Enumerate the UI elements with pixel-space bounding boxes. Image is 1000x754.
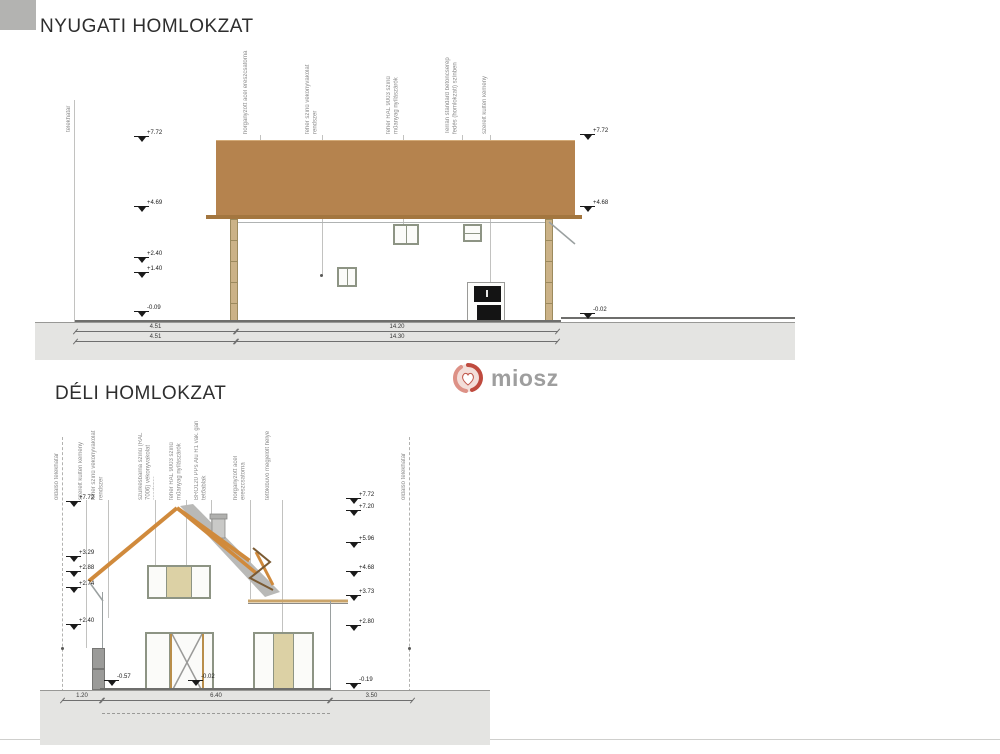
west-label-plaster: fehér színű vékonyvakolat rendszer <box>305 50 321 134</box>
window-pane <box>339 269 348 285</box>
south-label-prop-right: oldalsó telekhatár <box>401 437 409 500</box>
window-pane <box>192 567 209 597</box>
corner-ui-block <box>0 0 36 30</box>
south-ground-line <box>100 688 331 690</box>
west-property-line <box>74 100 75 322</box>
west-downpipe-diagonal <box>545 220 580 248</box>
elevation-drawing-sheet: NYUGATI HOMLOKZAT telekhatár horganyzott… <box>0 0 1000 754</box>
west-label-windows: fehér RAL 9003 színű műanyag nyílászárók <box>386 50 402 134</box>
elevation-marker: -0.02 <box>192 681 202 687</box>
south-label-prop-left: oldalsó telekhatár <box>54 437 62 500</box>
property-dot <box>408 647 411 650</box>
window-pane <box>149 567 167 597</box>
window-panel <box>167 567 192 597</box>
west-roof <box>216 140 575 218</box>
elevation-marker: +3.73 <box>350 596 360 602</box>
logo-text: miosz <box>491 365 559 392</box>
dimension-segment: 14.30 <box>236 341 558 342</box>
west-ground-line <box>75 320 561 322</box>
west-window-small-right <box>463 224 482 242</box>
elevation-marker: +3.29 <box>70 557 80 563</box>
window-pane <box>465 226 480 234</box>
dimension-segment: 6.40 <box>102 700 330 701</box>
door-side-pane <box>147 634 170 691</box>
chimney-opening-mark <box>486 290 488 297</box>
south-dashed-extent <box>102 713 330 714</box>
elevation-marker: -0.19 <box>350 684 360 690</box>
elevation-marker: +2.88 <box>70 572 80 578</box>
south-door-unit <box>145 632 214 693</box>
leader-dot <box>320 274 323 277</box>
window-pane <box>294 634 312 690</box>
window-pane <box>407 226 418 243</box>
elevation-marker: +7.72 <box>584 135 594 141</box>
dimension-segment: 3.50 <box>330 700 413 701</box>
elevation-marker: +2.74 <box>70 588 80 594</box>
south-label-chimney: szerelt kültéri kémény <box>78 420 86 500</box>
elevation-marker: +2.40 <box>70 625 80 631</box>
south-label-plaster-w: fehér színű vékonyvakolat rendszer <box>91 420 107 500</box>
miosz-logo-icon <box>452 362 484 394</box>
logo: miosz <box>452 362 559 394</box>
elevation-marker: +1.40 <box>138 273 148 279</box>
dimension-segment: 14.20 <box>236 331 558 332</box>
west-label-telekhatar: telekhatár <box>66 92 74 132</box>
elevation-marker: +7.20 <box>350 511 360 517</box>
south-wall-right <box>330 601 331 690</box>
south-property-line-right <box>409 437 410 702</box>
elevation-marker: -0.02 <box>584 314 594 320</box>
west-label-gutter: horganyzott acél ereszcsatorna <box>243 50 259 134</box>
elevation-marker: +7.72 <box>70 502 80 508</box>
south-label-gutter: horganyzott acél ereszcsatorna <box>233 420 249 500</box>
west-ground-line-right <box>561 317 795 319</box>
south-chimney-upper <box>92 648 105 669</box>
south-roof <box>80 500 360 610</box>
west-wall-top-line <box>237 222 545 223</box>
south-window-right <box>253 632 314 692</box>
south-label-roofhatch: tetőkibúvó megjelölt helye <box>265 420 281 500</box>
dimension-segment: 4.51 <box>75 331 236 332</box>
dimension-segment: 4.51 <box>75 341 236 342</box>
west-window-upper <box>393 224 419 245</box>
west-label-chimney: szerelt kültéri kémény <box>482 50 490 134</box>
window-pane <box>255 634 274 690</box>
elevation-marker: +2.40 <box>138 258 148 264</box>
property-dot <box>61 647 64 650</box>
west-eaves <box>206 215 582 219</box>
window-pane <box>465 234 480 241</box>
window-panel <box>274 634 293 690</box>
west-elevation-title: NYUGATI HOMLOKZAT <box>40 16 254 38</box>
dimension-segment: 1.20 <box>62 700 102 701</box>
window-pane <box>395 226 407 243</box>
south-label-roofwindow: BRO120 PPs Alu R1 vak. gari tetőablak <box>194 420 210 500</box>
elevation-marker: -0.09 <box>138 312 148 318</box>
window-pane <box>348 269 356 285</box>
elevation-marker: +5.96 <box>350 543 360 549</box>
west-post-left <box>230 219 238 325</box>
door-side-pane <box>204 634 212 691</box>
elevation-marker: +2.80 <box>350 626 360 632</box>
elevation-marker: +4.69 <box>138 207 148 213</box>
south-label-windows: fehér RAL 9003 színű műanyag nyílászárók <box>169 420 185 500</box>
south-elevation-title: DÉLI HOMLOKZAT <box>55 383 226 405</box>
elevation-marker: -0.57 <box>108 681 118 687</box>
south-label-plaster-g: szürkésbarna színű (RAL 7006) vékonyvako… <box>138 420 154 500</box>
elevation-marker: +7.72 <box>138 137 148 143</box>
south-property-line-left <box>62 437 63 702</box>
west-label-rooftile: Terrán standard betoncserép fedés (homlo… <box>445 50 461 134</box>
elevation-marker: +4.68 <box>584 207 594 213</box>
west-window-small-center <box>337 267 357 287</box>
south-window-upper <box>147 565 211 599</box>
elevation-marker: +4.68 <box>350 572 360 578</box>
